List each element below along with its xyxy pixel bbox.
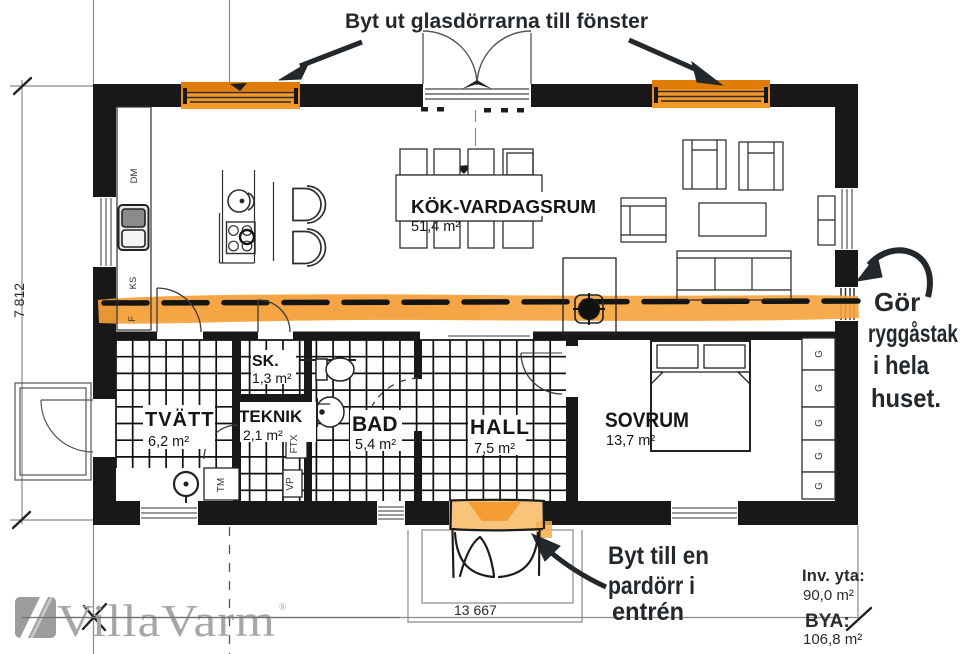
svg-text:13 667: 13 667 xyxy=(454,602,497,618)
svg-text:F: F xyxy=(127,316,138,322)
svg-text:G: G xyxy=(814,350,825,358)
svg-text:®: ® xyxy=(279,602,287,613)
svg-text:Byt ut glasdörrarna till fönst: Byt ut glasdörrarna till fönster xyxy=(345,10,648,33)
svg-text:KS: KS xyxy=(128,277,139,290)
svg-text:2,1 m²: 2,1 m² xyxy=(243,427,283,443)
svg-text:VP: VP xyxy=(285,477,296,491)
svg-text:G: G xyxy=(814,384,825,392)
svg-text:entrén: entrén xyxy=(612,598,684,626)
svg-text:Gör: Gör xyxy=(874,287,920,317)
svg-text:i hela: i hela xyxy=(873,350,929,380)
svg-text:pardörr i: pardörr i xyxy=(608,572,695,600)
svg-text:TVÄTT: TVÄTT xyxy=(145,408,214,431)
svg-text:huset.: huset. xyxy=(871,383,941,413)
svg-text:106,8 m²: 106,8 m² xyxy=(803,631,862,648)
svg-text:Inv. yta:: Inv. yta: xyxy=(802,567,865,585)
svg-text:1,3 m²: 1,3 m² xyxy=(252,370,292,386)
svg-text:G: G xyxy=(814,452,825,460)
svg-text:TM: TM xyxy=(216,478,227,492)
svg-text:13,7 m²: 13,7 m² xyxy=(606,433,655,449)
svg-text:DM: DM xyxy=(129,169,140,184)
svg-text:TEKNIK: TEKNIK xyxy=(239,407,303,426)
svg-text:G: G xyxy=(814,482,825,490)
svg-text:VillaVarm: VillaVarm xyxy=(57,595,276,646)
svg-text:HALL: HALL xyxy=(470,416,530,439)
svg-text:7 812: 7 812 xyxy=(11,283,27,318)
svg-text:5,4 m²: 5,4 m² xyxy=(355,437,396,453)
svg-text:FTX: FTX xyxy=(289,434,300,453)
svg-text:ryggåstak: ryggåstak xyxy=(868,320,958,348)
svg-text:Byt till en: Byt till en xyxy=(608,542,709,570)
svg-text:6,2 m²: 6,2 m² xyxy=(148,434,189,450)
svg-text:7,5 m²: 7,5 m² xyxy=(474,441,515,457)
svg-text:SOVRUM: SOVRUM xyxy=(605,409,689,432)
svg-text:BYA:: BYA: xyxy=(805,611,850,632)
svg-text:KÖK-VARDAGSRUM: KÖK-VARDAGSRUM xyxy=(411,196,596,217)
svg-text:51,4 m²: 51,4 m² xyxy=(411,219,460,235)
svg-text:SK.: SK. xyxy=(252,353,279,370)
svg-text:BAD: BAD xyxy=(352,413,398,436)
svg-text:G: G xyxy=(814,419,825,427)
svg-text:90,0 m²: 90,0 m² xyxy=(803,587,854,604)
